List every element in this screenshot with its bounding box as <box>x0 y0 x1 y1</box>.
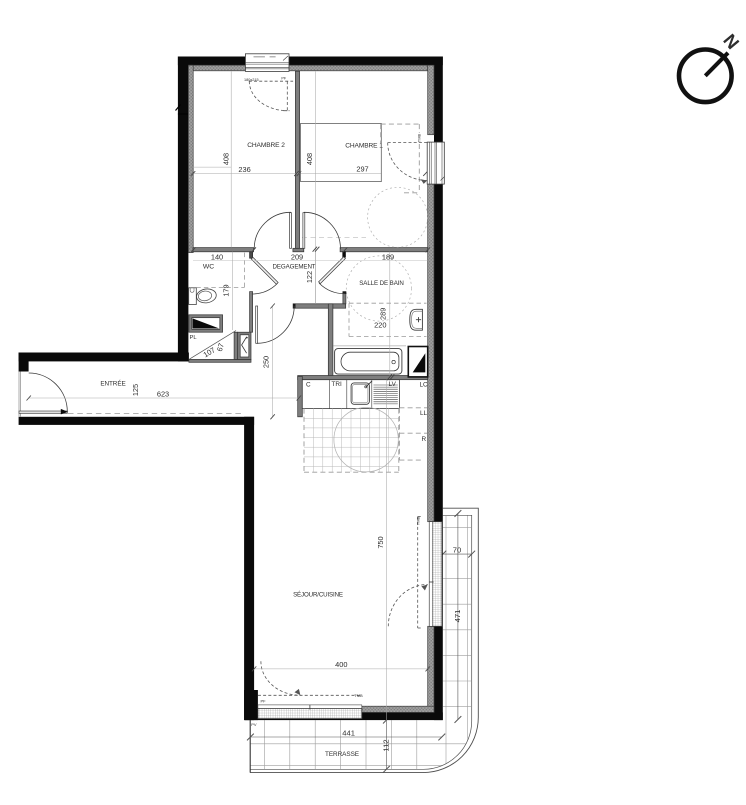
svg-text:PF: PF <box>260 698 266 703</box>
svg-text:236: 236 <box>238 165 250 174</box>
svg-text:SALLE DE BAIN: SALLE DE BAIN <box>359 280 403 287</box>
svg-text:408: 408 <box>305 153 314 165</box>
svg-text:TERRASSE: TERRASSE <box>325 751 359 758</box>
svg-text:297: 297 <box>356 165 368 174</box>
svg-text:70: 70 <box>453 546 461 555</box>
svg-text:CHAMBRE 2: CHAMBRE 2 <box>247 142 285 149</box>
svg-text:441: 441 <box>342 728 355 737</box>
svg-text:140: 140 <box>211 252 223 261</box>
svg-text:LV: LV <box>389 381 397 388</box>
svg-text:PV: PV <box>251 722 257 727</box>
svg-text:SÉJOUR/CUISINE: SÉJOUR/CUISINE <box>293 592 343 599</box>
svg-text:DEGAGEMENT: DEGAGEMENT <box>272 264 315 271</box>
svg-text:R: R <box>422 436 427 443</box>
svg-text:408: 408 <box>222 153 231 165</box>
svg-text:209: 209 <box>291 252 303 261</box>
svg-text:623: 623 <box>157 389 169 398</box>
svg-text:CHAMBRE 1: CHAMBRE 1 <box>345 142 383 149</box>
svg-text:180x215: 180x215 <box>244 78 259 82</box>
svg-text:TMB: TMB <box>416 516 421 525</box>
svg-text:PF: PF <box>281 76 287 80</box>
svg-text:179: 179 <box>222 284 231 296</box>
svg-text:TRI: TRI <box>332 381 343 388</box>
svg-text:TMB: TMB <box>416 133 421 142</box>
svg-text:220: 220 <box>374 321 386 330</box>
svg-text:750: 750 <box>376 536 385 548</box>
svg-text:TMB: TMB <box>354 693 363 698</box>
svg-text:189: 189 <box>382 252 394 261</box>
svg-text:125: 125 <box>131 384 140 396</box>
svg-text:PL: PL <box>190 335 198 341</box>
svg-text:112: 112 <box>382 739 391 751</box>
svg-text:400: 400 <box>335 660 347 669</box>
svg-text:LC: LC <box>420 381 429 388</box>
svg-text:122: 122 <box>305 271 314 283</box>
svg-text:LL: LL <box>420 410 428 417</box>
svg-text:471: 471 <box>453 610 462 623</box>
svg-text:C: C <box>306 381 311 388</box>
svg-text:ENTRÉE: ENTRÉE <box>100 378 125 387</box>
svg-text:WC: WC <box>203 264 214 271</box>
svg-text:250: 250 <box>262 356 271 368</box>
svg-text:289: 289 <box>378 308 387 320</box>
